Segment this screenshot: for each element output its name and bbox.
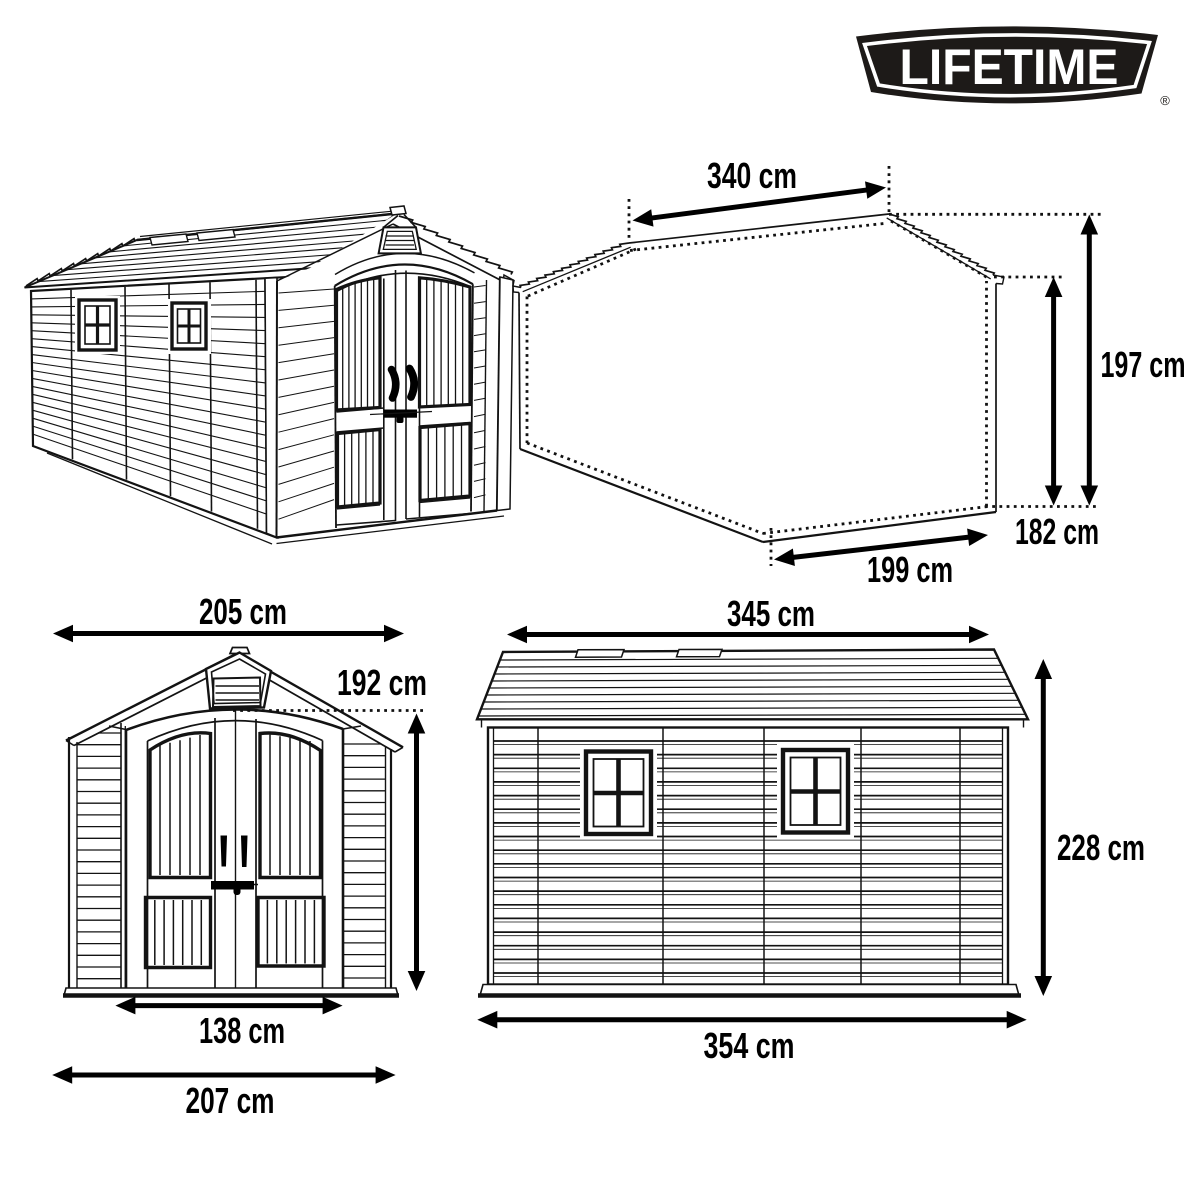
svg-text:182 cm: 182 cm: [1015, 511, 1099, 552]
svg-text:197 cm: 197 cm: [1101, 344, 1186, 385]
svg-text:138 cm: 138 cm: [199, 1010, 285, 1051]
svg-text:192 cm: 192 cm: [337, 662, 427, 703]
svg-text:345 cm: 345 cm: [727, 593, 815, 634]
svg-text:LIFETIME: LIFETIME: [900, 39, 1119, 95]
svg-text:354 cm: 354 cm: [704, 1025, 795, 1066]
svg-text:205 cm: 205 cm: [199, 591, 287, 632]
svg-text:207 cm: 207 cm: [186, 1080, 275, 1121]
svg-text:340 cm: 340 cm: [707, 155, 797, 196]
svg-text:199 cm: 199 cm: [867, 549, 953, 590]
svg-text:®: ®: [1160, 93, 1170, 108]
svg-text:228 cm: 228 cm: [1057, 827, 1145, 868]
